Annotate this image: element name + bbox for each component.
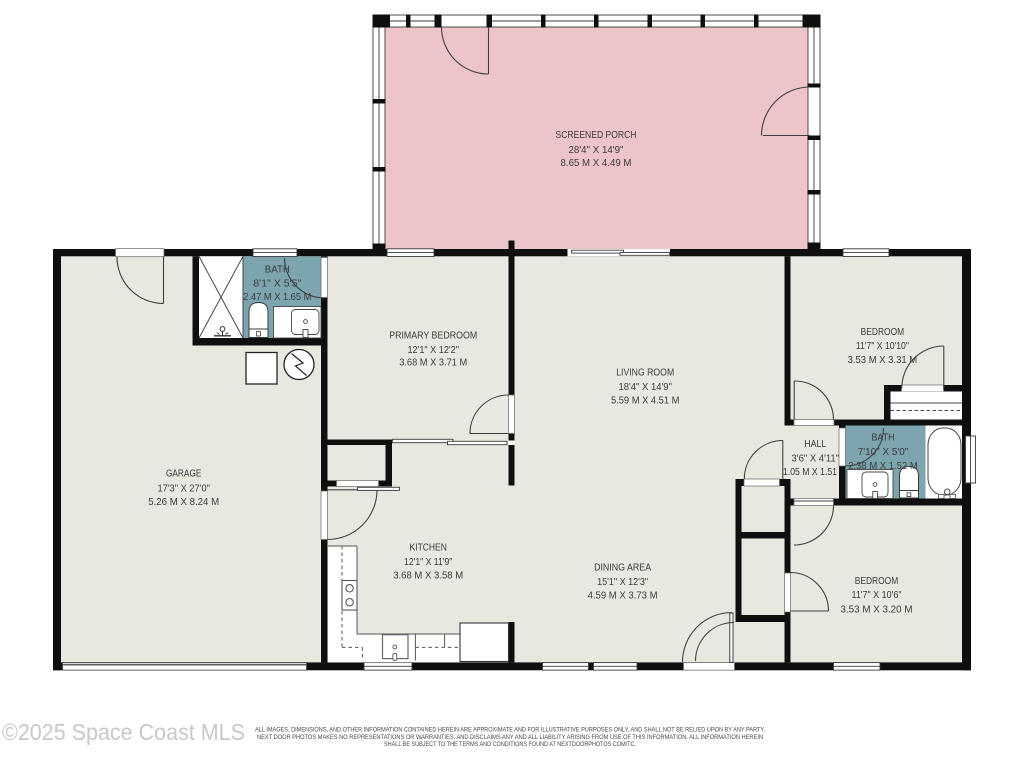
svg-text:DINING AREA: DINING AREA	[594, 562, 651, 574]
svg-text:BATH: BATH	[872, 432, 895, 444]
svg-text:11'7" X 10'6": 11'7" X 10'6"	[852, 589, 902, 601]
svg-text:ALL IMAGES, DIMENSIONS, AND OT: ALL IMAGES, DIMENSIONS, AND OTHER INFORM…	[255, 727, 765, 734]
svg-text:8'1" X 5'5": 8'1" X 5'5"	[253, 278, 301, 290]
svg-text:©2025 Space Coast MLS: ©2025 Space Coast MLS	[2, 719, 245, 745]
svg-text:BEDROOM: BEDROOM	[855, 575, 899, 587]
svg-text:3.53 M X 3.20 M: 3.53 M X 3.20 M	[841, 603, 913, 615]
svg-text:NEXT DOOR PHOTOS MAKES NO REPR: NEXT DOOR PHOTOS MAKES NO REPRESENTATION…	[257, 734, 763, 741]
svg-text:KITCHEN: KITCHEN	[410, 542, 447, 554]
svg-text:PRIMARY BEDROOM: PRIMARY BEDROOM	[389, 329, 477, 341]
svg-text:2.47 M X 1.65 M: 2.47 M X 1.65 M	[243, 291, 311, 303]
svg-text:1.05 M X 1.51: 1.05 M X 1.51	[783, 466, 837, 478]
svg-text:18'4" X 14'9": 18'4" X 14'9"	[618, 381, 672, 393]
svg-text:12'1" X 11'9": 12'1" X 11'9"	[404, 556, 453, 568]
svg-text:17'3" X 27'0": 17'3" X 27'0"	[157, 483, 210, 495]
svg-text:11'7" X 10'10": 11'7" X 10'10"	[856, 340, 909, 352]
svg-text:HALL: HALL	[804, 438, 826, 450]
svg-text:GARAGE: GARAGE	[166, 468, 202, 480]
svg-text:15'1" X 12'3": 15'1" X 12'3"	[597, 576, 648, 588]
svg-text:3'6" X 4'11": 3'6" X 4'11"	[792, 453, 840, 465]
svg-text:12'1" X 12'2": 12'1" X 12'2"	[407, 344, 459, 356]
svg-text:3.53 M X 3.31 M: 3.53 M X 3.31 M	[848, 354, 918, 366]
svg-text:BEDROOM: BEDROOM	[861, 326, 905, 338]
svg-text:5.26 M X 8.24 M: 5.26 M X 8.24 M	[148, 496, 219, 508]
svg-text:SCREENED PORCH: SCREENED PORCH	[556, 129, 637, 141]
svg-text:3.68 M X 3.71 M: 3.68 M X 3.71 M	[399, 357, 467, 369]
svg-text:SHALL BE SUBJECT TO THE TERMS: SHALL BE SUBJECT TO THE TERMS AND CONDIT…	[384, 741, 636, 748]
svg-text:28'4" X 14'9": 28'4" X 14'9"	[569, 144, 624, 156]
svg-text:4.59 M X 3.73 M: 4.59 M X 3.73 M	[588, 590, 658, 602]
svg-text:5.59 M X 4.51 M: 5.59 M X 4.51 M	[611, 395, 680, 407]
svg-text:8.65 M X 4.49 M: 8.65 M X 4.49 M	[561, 157, 632, 169]
svg-text:LIVING ROOM: LIVING ROOM	[616, 367, 674, 379]
svg-text:2.38 M X 1.52 M: 2.38 M X 1.52 M	[848, 460, 918, 472]
svg-text:BATH: BATH	[265, 263, 290, 275]
svg-text:3.68 M X 3.58 M: 3.68 M X 3.58 M	[393, 570, 463, 582]
svg-text:7'10" X 5'0": 7'10" X 5'0"	[858, 446, 909, 458]
